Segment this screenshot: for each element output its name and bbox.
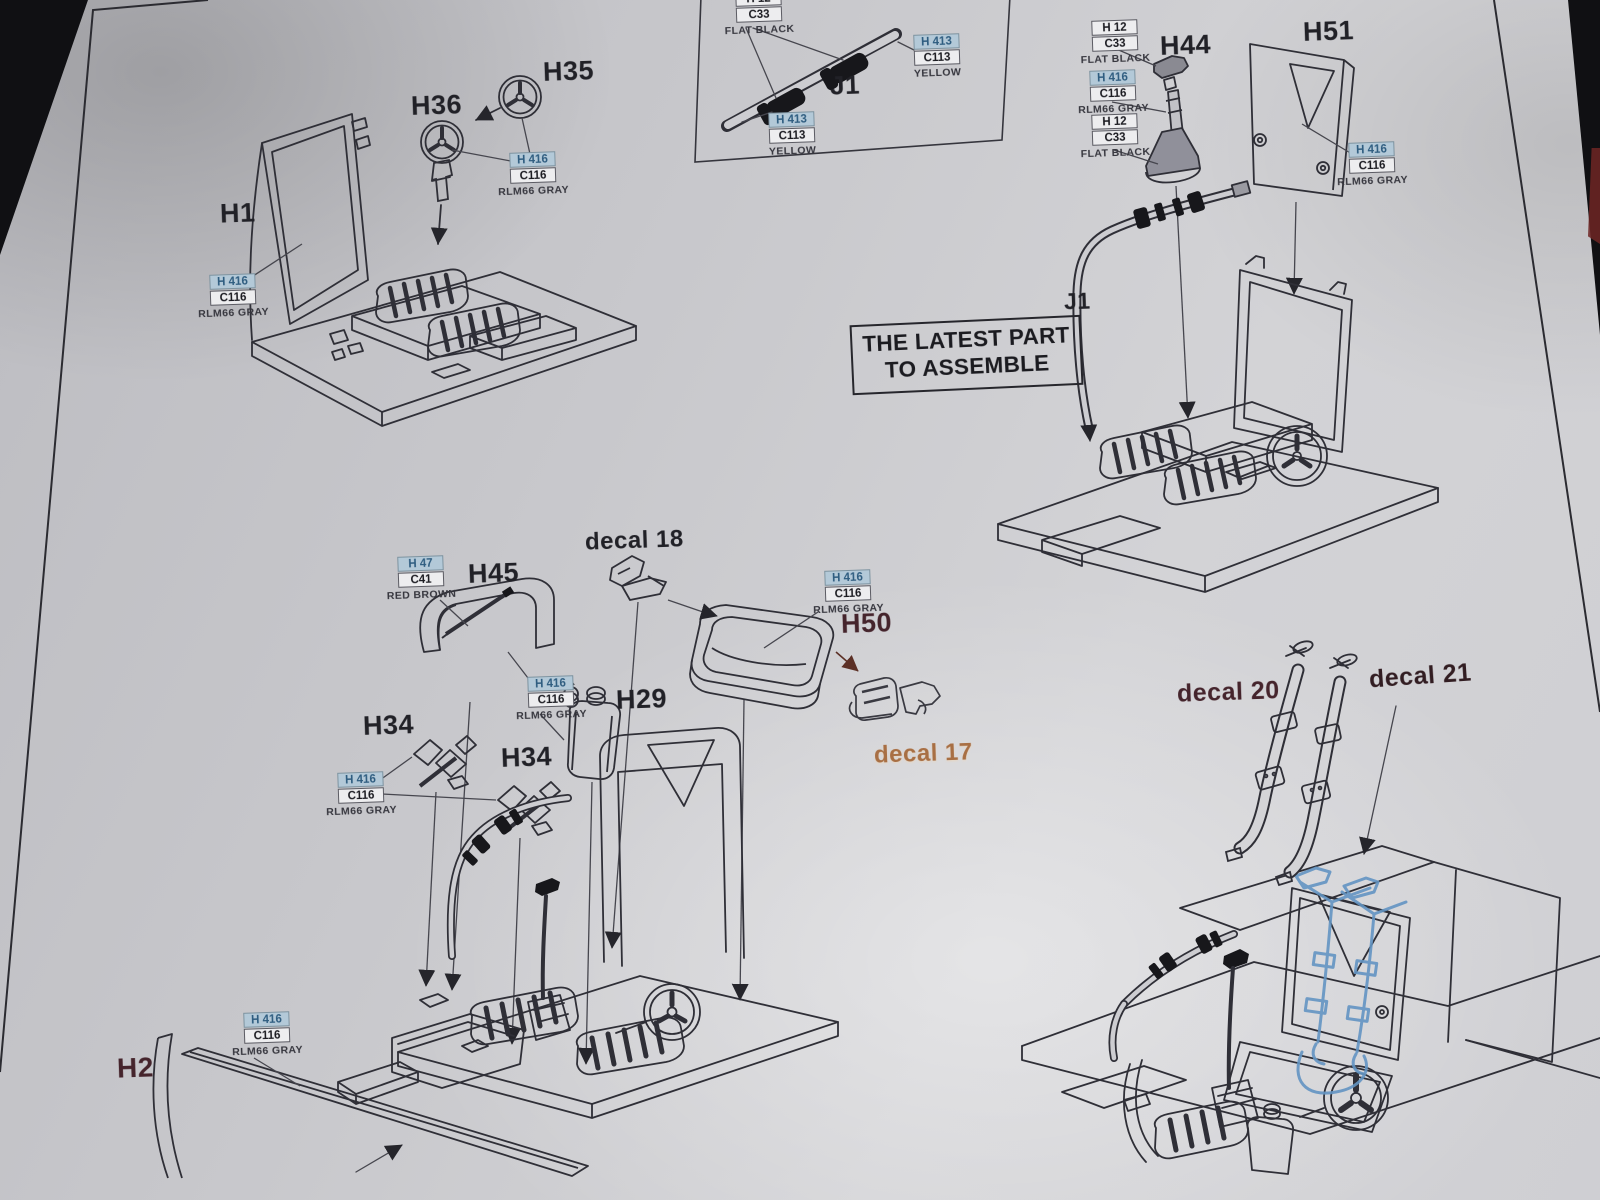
part-label-h45: H45 (467, 557, 519, 590)
paint-code-h: H 416 (243, 1011, 289, 1028)
paint-code-h: H 416 (209, 273, 255, 290)
paint-name: RED BROWN (387, 588, 457, 602)
paint-code-h: H 12 (1091, 113, 1137, 130)
paint-code-c: C116 (528, 691, 574, 708)
paint-code-c: C33 (736, 6, 782, 23)
part-label-h36: H36 (410, 89, 462, 122)
paint-code-h: H 416 (527, 675, 573, 692)
paint-name: RLM66 GRAY (1337, 174, 1408, 188)
paint-name: FLAT BLACK (1081, 146, 1151, 160)
paint-callout-rlm66-gray: H 416 C116 RLM66 GRAY (1334, 141, 1410, 189)
paint-code-c: C116 (1349, 157, 1395, 174)
paint-name: RLM66 GRAY (498, 184, 569, 198)
paint-code-c: C116 (825, 585, 871, 602)
paint-name: FLAT BLACK (1081, 52, 1151, 66)
paint-name: RLM66 GRAY (516, 708, 587, 722)
paint-callout-yellow: H 413 C113 YELLOW (754, 111, 830, 159)
part-label-h34-a: H34 (362, 709, 414, 742)
paint-code-c: C113 (769, 127, 815, 144)
paint-code-c: C41 (398, 571, 444, 588)
part-label-h1: H1 (219, 197, 256, 229)
paint-code-c: C116 (1090, 85, 1136, 102)
paint-code-h: H 416 (509, 151, 555, 168)
paint-code-h: H 413 (768, 111, 814, 128)
paint-code-h: H 416 (337, 771, 383, 788)
paint-callout-yellow: H 413 C113 YELLOW (899, 33, 975, 81)
paint-code-c: C116 (338, 787, 384, 804)
paint-name: RLM66 GRAY (813, 602, 884, 616)
assembly-note-box: THE LATEST PART TO ASSEMBLE (850, 315, 1084, 395)
paint-callout-rlm66-gray: H 416 C116 RLM66 GRAY (195, 273, 271, 321)
part-label-decal18: decal 18 (585, 525, 685, 556)
paint-name: FLAT BLACK (725, 23, 795, 37)
paint-code-c: C116 (510, 167, 556, 184)
paint-callout-red-brown: H 47 C41 RED BROWN (383, 555, 459, 603)
paint-callout-rlm66-gray: H 416 C116 RLM66 GRAY (495, 151, 571, 199)
paint-code-c: C116 (210, 289, 256, 306)
part-label-h35: H35 (542, 55, 594, 88)
paint-name: RLM66 GRAY (232, 1044, 303, 1058)
part-label-decal21: decal 21 (1368, 658, 1472, 694)
paint-code-h: H 413 (913, 33, 959, 50)
paint-code-c: C33 (1092, 35, 1138, 52)
paint-code-h: H 416 (824, 569, 870, 586)
paint-callout-rlm66-gray: H 416 C116 RLM66 GRAY (1075, 69, 1151, 117)
paint-callout-flat-black-clipped: H 12 C33 FLAT BLACK (721, 0, 797, 37)
part-label-h51: H51 (1302, 15, 1354, 48)
paint-code-c: C116 (244, 1027, 290, 1044)
part-label-h29: H29 (615, 683, 667, 716)
paint-name: YELLOW (914, 66, 962, 80)
paint-code-c: C113 (914, 49, 960, 66)
paint-callout-flat-black: H 12 C33 FLAT BLACK (1077, 113, 1153, 161)
paint-code-h: H 416 (1089, 69, 1135, 86)
paint-code-c: C33 (1092, 129, 1138, 146)
part-label-h2: H2 (116, 1051, 154, 1084)
paint-name: RLM66 GRAY (198, 306, 269, 320)
part-label-decal20: decal 20 (1177, 676, 1281, 709)
paint-callout-flat-black: H 12 C33 FLAT BLACK (1077, 19, 1153, 67)
instruction-sheet-photo: H36 H35 H1 J1 H44 H51 J1 decal 18 H45 H5… (0, 0, 1600, 1200)
paint-callout-rlm66-gray: H 416 C116 RLM66 GRAY (323, 771, 399, 819)
part-label-decal17: decal 17 (874, 738, 974, 769)
part-label-h44: H44 (1159, 29, 1211, 62)
paint-code-h: H 416 (1348, 141, 1394, 158)
labels-layer: H36 H35 H1 J1 H44 H51 J1 decal 18 H45 H5… (0, 0, 1600, 1200)
part-label-h34-b: H34 (500, 741, 552, 774)
paint-callout-rlm66-gray: H 416 C116 RLM66 GRAY (513, 675, 589, 723)
part-label-j1-inset: J1 (829, 69, 860, 101)
paint-code-h: H 47 (397, 555, 443, 572)
paint-callout-rlm66-gray: H 416 C116 RLM66 GRAY (229, 1011, 305, 1059)
paint-callout-rlm66-gray: H 416 C116 RLM66 GRAY (810, 569, 886, 617)
paint-name: RLM66 GRAY (326, 804, 397, 818)
paint-code-h: H 12 (1091, 19, 1137, 36)
part-label-j1-assembly: J1 (1064, 288, 1092, 316)
paint-name: YELLOW (769, 144, 817, 158)
